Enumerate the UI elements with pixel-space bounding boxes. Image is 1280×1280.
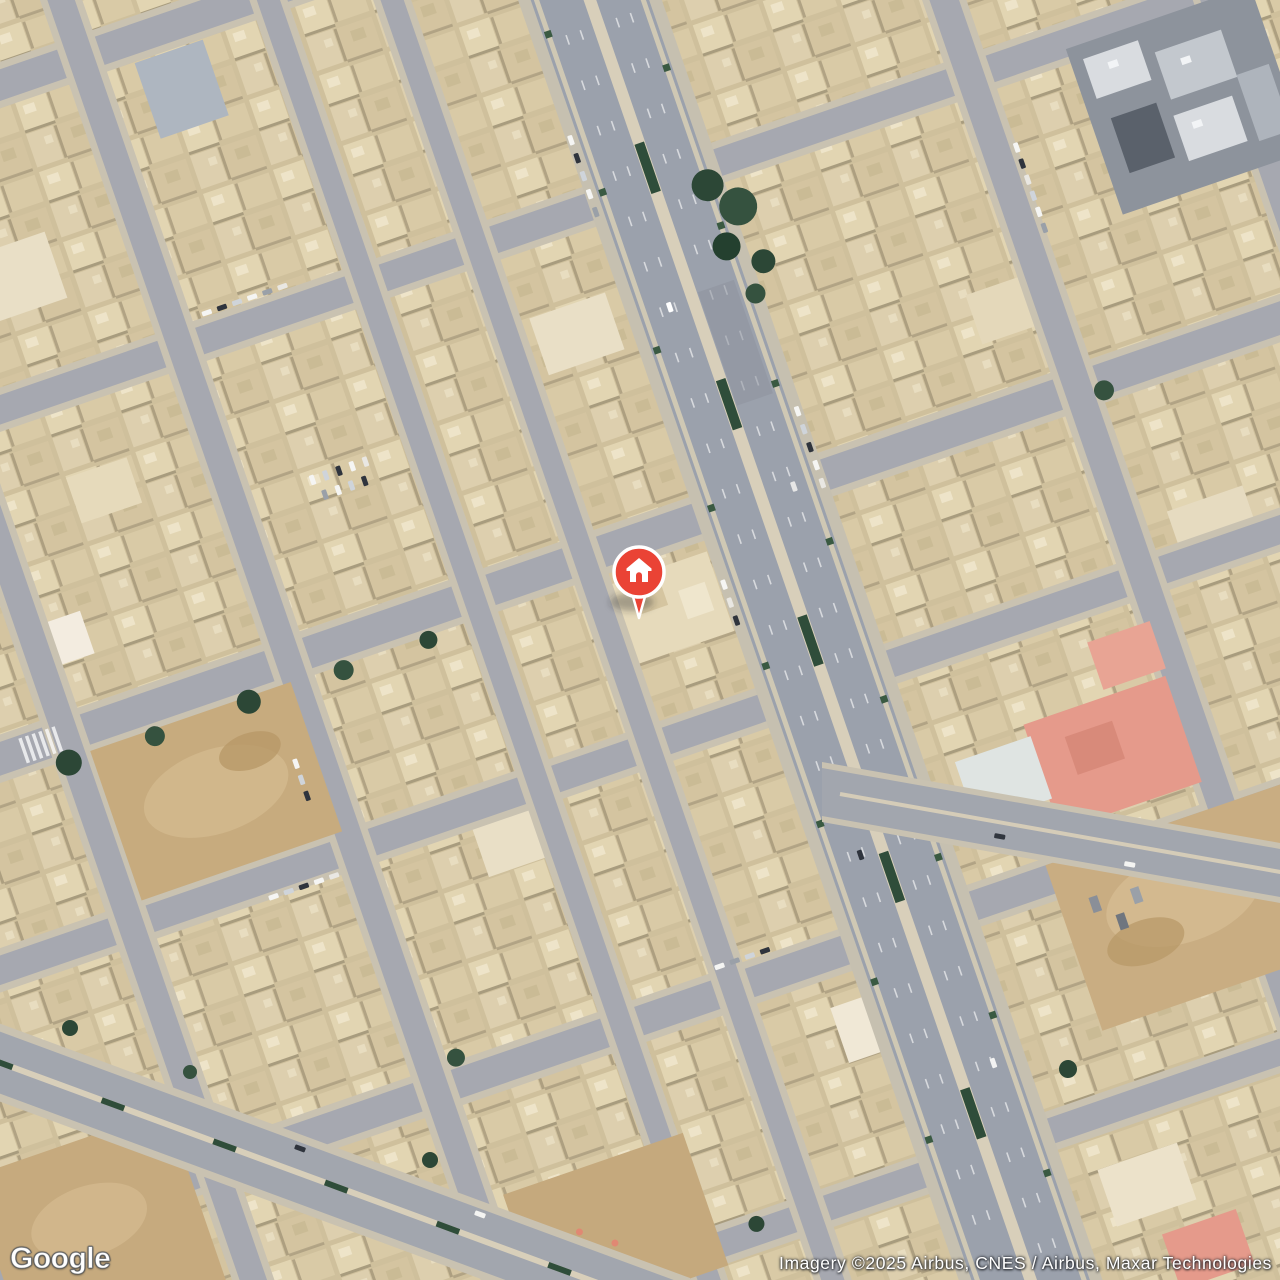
city-grid [0, 0, 1280, 1280]
imagery-attribution: Imagery ©2025 Airbus, CNES / Airbus, Max… [779, 1253, 1272, 1274]
google-logo[interactable]: Google [10, 1242, 110, 1276]
satellite-map[interactable] [0, 0, 1280, 1280]
satellite-map-viewport[interactable]: Google Imagery ©2025 Airbus, CNES / Airb… [0, 0, 1280, 1280]
